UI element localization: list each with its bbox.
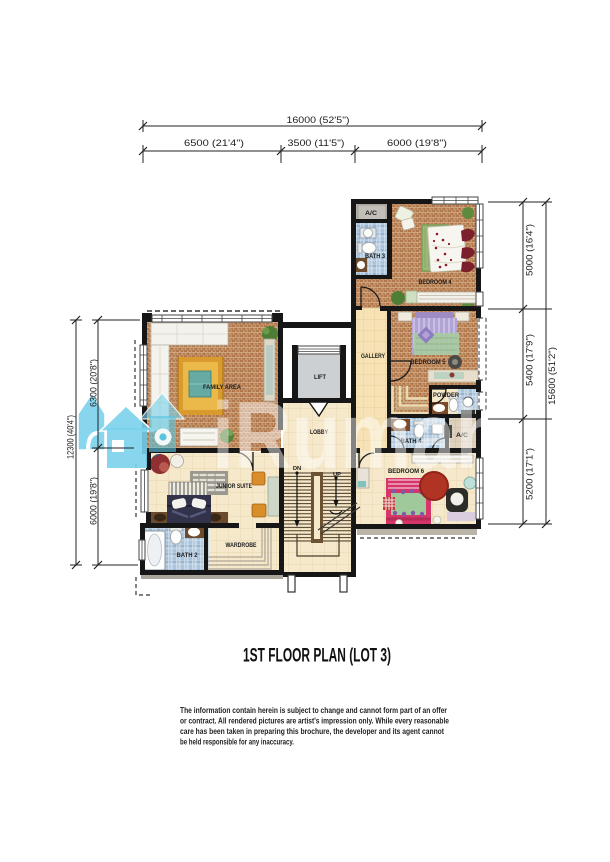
svg-text:16000 (52'5"): 16000 (52'5"): [287, 115, 350, 125]
svg-text:BEDROOM 5: BEDROOM 5: [411, 359, 446, 366]
svg-text:5000 (16'4"): 5000 (16'4"): [525, 224, 535, 276]
svg-text:A/C: A/C: [365, 210, 377, 217]
svg-text:The information contain herein: The information contain herein is subjec…: [180, 706, 448, 715]
svg-text:GALLERY: GALLERY: [361, 353, 386, 360]
svg-text:WARDROBE: WARDROBE: [226, 542, 257, 549]
svg-text:6500 (21'4"): 6500 (21'4"): [184, 138, 244, 148]
svg-text:5400 (17'9"): 5400 (17'9"): [525, 334, 535, 386]
svg-text:15600 (51'2"): 15600 (51'2"): [547, 347, 557, 405]
svg-text:6300 (20'8"): 6300 (20'8"): [89, 359, 99, 407]
svg-text:or contract. All rendered pict: or contract. All rendered pictures are a…: [180, 717, 449, 726]
svg-text:BATH 2: BATH 2: [177, 552, 198, 559]
svg-text:BEDROOM 4: BEDROOM 4: [419, 279, 452, 286]
svg-text:5200 (17'1"): 5200 (17'1"): [525, 448, 535, 500]
svg-text:LIFT: LIFT: [314, 374, 326, 381]
svg-text:BATH 3: BATH 3: [365, 253, 385, 260]
svg-text:1ST FLOOR PLAN (LOT 3): 1ST FLOOR PLAN (LOT 3): [243, 646, 391, 667]
svg-text:6000 (19'8"): 6000 (19'8"): [387, 138, 447, 148]
svg-text:iRumah: iRumah: [212, 383, 504, 489]
svg-text:6000 (19'8"): 6000 (19'8"): [89, 477, 99, 525]
svg-text:12300 (40'4"): 12300 (40'4"): [66, 415, 76, 459]
svg-text:3500 (11'5"): 3500 (11'5"): [288, 138, 345, 148]
svg-text:care has been taken in prepari: care has been taken in preparing this br…: [180, 727, 444, 736]
svg-text:be held responsible for any in: be held responsible for any inaccuracy.: [180, 738, 294, 747]
